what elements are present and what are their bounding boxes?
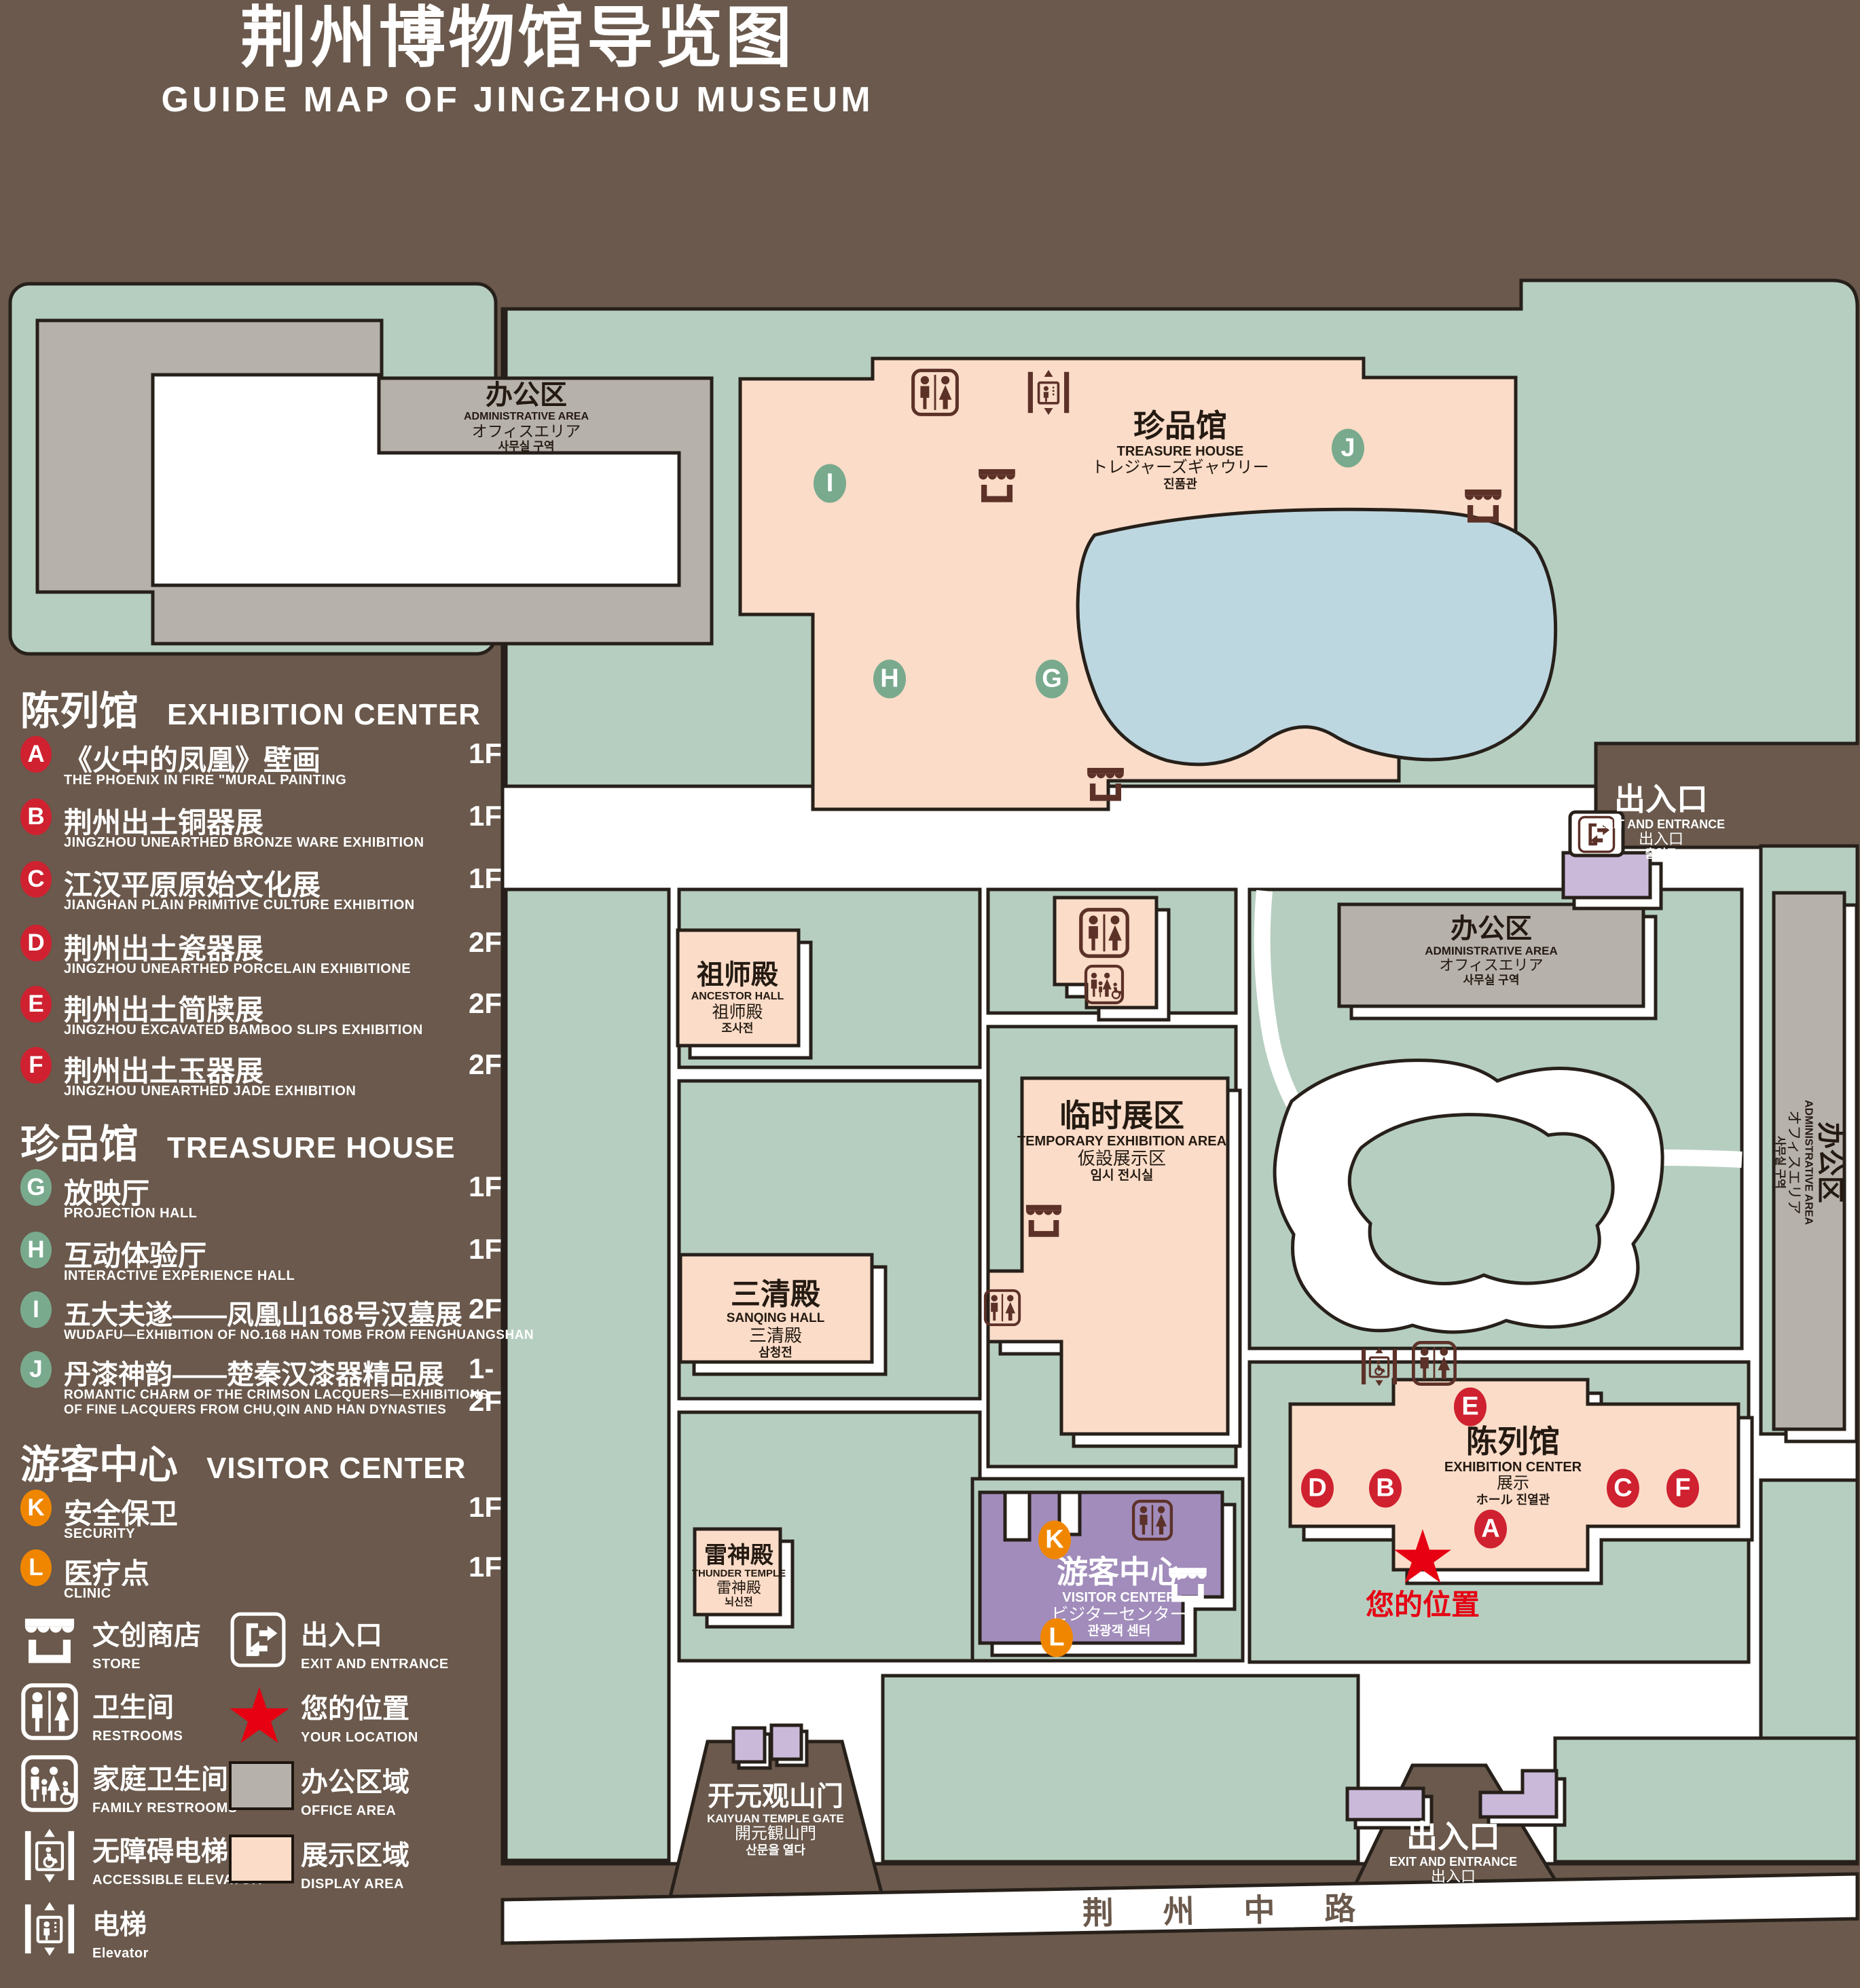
floor-label: 1F <box>469 1491 502 1524</box>
map-marker-E: E <box>1454 1388 1487 1426</box>
legend-item-J: J 丹漆神韵——楚秦汉漆器精品展 ROMANTIC CHARM OF THE C… <box>20 1352 523 1434</box>
section-title-zh: 珍品馆 <box>20 1112 139 1169</box>
section-exhibition-center: 陈列馆 EXHIBITION CENTER <box>20 679 481 736</box>
pond <box>1078 509 1556 765</box>
display-area-swatch <box>229 1835 294 1883</box>
marker-badge: C <box>20 861 52 898</box>
marker-badge: D <box>20 925 52 961</box>
marker-badge: G <box>20 1169 52 1206</box>
floor-label: 2F <box>469 987 502 1020</box>
marker-badge: L <box>20 1549 52 1586</box>
garden-path-east <box>1662 1158 1742 1160</box>
floor-label: 1F <box>469 800 502 832</box>
label-sanqing-hall: 三清殿 SANQING HALL 三清殿 삼청전 <box>727 1278 825 1359</box>
legend-item-H: H 互动体验厅 INTERACTIVE EXPERIENCE HALL 1F <box>20 1233 523 1295</box>
section-title-zh: 游客中心 <box>20 1433 178 1490</box>
section-title-en: TREASURE HOUSE <box>167 1131 456 1165</box>
kaiyuan-gate-building <box>771 1725 801 1759</box>
marker-badge: A <box>20 736 52 773</box>
marker-badge: F <box>20 1047 52 1084</box>
label-kaiyuan-gate: 开元观山门 KAIYUAN TEMPLE GATE 開元観山門 산문을 열다 <box>707 1782 844 1857</box>
legend-item-G: G 放映厅 PROJECTION HALL 1F <box>20 1171 523 1233</box>
floor-label: 1F <box>469 862 502 895</box>
label-temporary-area: 临时展区 TEMPORARY EXHIBITION AREA 仮設展示区 임시 … <box>1017 1099 1226 1183</box>
marker-badge: I <box>20 1291 52 1328</box>
label-exit-south: 出入口 EXIT AND ENTRANCE 出入口 출입구 <box>1389 1820 1517 1898</box>
legend-item-K: K 安全保卫 SECURITY 1F <box>20 1491 523 1553</box>
section-title-zh: 陈列馆 <box>20 679 139 736</box>
section-treasure-house: 珍品馆 TREASURE HOUSE <box>20 1112 456 1169</box>
map-marker-C: C <box>1607 1469 1639 1508</box>
floor-label: 2F <box>469 926 502 959</box>
floor-label: 1F <box>469 737 502 770</box>
garden-islet <box>1349 1115 1613 1284</box>
legend-item-D: D 荆州出土瓷器展 JINGZHOU UNEARTHED PORCELAIN E… <box>20 926 523 989</box>
label-treasure-house: 珍品馆 TREASURE HOUSE トレジャーズギャウリー 진품관 <box>1091 409 1269 491</box>
map-marker-A: A <box>1474 1510 1507 1549</box>
your-location-label: 您的位置 <box>1366 1582 1480 1623</box>
green-band-south-right <box>1555 1738 1857 1862</box>
legend-item-A: A 《火中的凤凰》壁画 THE PHOENIX IN FIRE "MURAL P… <box>20 737 523 800</box>
label-exit-northeast: 出入口 EXIT AND ENTRANCE 出入口 출입구 <box>1597 782 1725 860</box>
visitor-center-notch <box>1005 1492 1029 1540</box>
marker-badge: J <box>20 1351 52 1388</box>
legend-item-L: L 医疗点 CLINIC 1F <box>20 1551 523 1613</box>
map-marker-G: G <box>1036 660 1068 699</box>
legend-item-C: C 江汉平原原始文化展 JIANGHAN PLAIN PRIMITIVE CUL… <box>20 862 523 925</box>
restrooms-icon <box>20 1682 79 1741</box>
your-location-icon <box>229 1684 290 1745</box>
map-marker-I: I <box>814 464 846 503</box>
page-title: 荆州博物馆导览图 GUIDE MAP OF JINGZHOU MUSEUM <box>161 3 873 120</box>
store-icon <box>20 1610 79 1669</box>
map-marker-J: J <box>1332 429 1364 468</box>
floor-label: 2F <box>469 1293 502 1325</box>
floor-label: 1-2F <box>469 1352 523 1418</box>
map-marker-K: K <box>1038 1521 1071 1560</box>
office-area-swatch <box>229 1761 294 1810</box>
title-zh: 荆州博物馆导览图 <box>161 3 873 73</box>
label-admin-east: 办公区 ADMINISTRATIVE AREA オフィスエリア 사무실 구역 <box>1425 914 1558 987</box>
road-label: 荆 州 中 路 <box>1082 1883 1376 1934</box>
south-gate-building <box>1347 1788 1423 1820</box>
label-admin-northwest: 办公区 ADMINISTRATIVE AREA オフィスエリア 사무실 구역 <box>464 380 589 453</box>
legend-item-E: E 荆州出土简牍展 JINGZHOU EXCAVATED BAMBOO SLIP… <box>20 987 523 1050</box>
legend-item-B: B 荆州出土铜器展 JINGZHOU UNEARTHED BRONZE WARE… <box>20 800 523 862</box>
floor-label: 1F <box>469 1233 502 1266</box>
floor-label: 2F <box>469 1048 502 1081</box>
label-ancestor-hall: 祖师殿 ANCESTOR HALL 祖师殿 조사전 <box>691 960 784 1035</box>
section-title-en: EXHIBITION CENTER <box>167 698 481 732</box>
accessible-elevator-icon <box>20 1826 79 1885</box>
marker-badge: E <box>20 986 52 1023</box>
green-column-west <box>506 889 669 1860</box>
section-visitor-center: 游客中心 VISITOR CENTER <box>20 1433 466 1490</box>
label-exhibition-center: 陈列馆 EXHIBITION CENTER 展示 ホール 진열관 <box>1444 1424 1582 1507</box>
marker-badge: K <box>20 1490 52 1526</box>
title-en: GUIDE MAP OF JINGZHOU MUSEUM <box>161 79 873 120</box>
elevator-icon <box>20 1900 79 1958</box>
kaiyuan-gate-building <box>733 1728 765 1762</box>
map-marker-D: D <box>1301 1469 1334 1508</box>
map-marker-F: F <box>1666 1469 1699 1508</box>
floor-label: 1F <box>469 1171 502 1203</box>
label-admin-strip: 办公区 ADMINISTRATIVE AREA オフィスエリア 사무실 구역 <box>1773 1100 1844 1225</box>
map-marker-H: H <box>873 660 906 699</box>
marker-badge: H <box>20 1232 52 1268</box>
section-title-en: VISITOR CENTER <box>206 1452 466 1486</box>
label-thunder-temple: 雷神殿 THUNDER TEMPLE 雷神殿 뇌신전 <box>692 1543 786 1608</box>
floor-label: 1F <box>469 1551 502 1583</box>
marker-badge: B <box>20 798 52 835</box>
guide-map-poster: 荆州博物馆导览图 GUIDE MAP OF JINGZHOU MUSEUM 陈列… <box>0 0 1860 1988</box>
legend-item-I: I 五大夫遂——凤凰山168号汉墓展 WUDAFU—EXHIBITION OF … <box>20 1293 523 1355</box>
exit-entrance-icon <box>229 1610 287 1669</box>
map-marker-B: B <box>1369 1469 1402 1508</box>
family-restrooms-icon <box>20 1754 79 1813</box>
legend-item-F: F 荆州出土玉器展 JINGZHOU UNEARTHED JADE EXHIBI… <box>20 1048 523 1111</box>
label-visitor-center: 游客中心 VISITOR CENTER ビジターセンター 관광객 센터 <box>1051 1555 1187 1638</box>
map-marker-L: L <box>1040 1619 1073 1657</box>
green-band-south-left <box>883 1676 1358 1862</box>
